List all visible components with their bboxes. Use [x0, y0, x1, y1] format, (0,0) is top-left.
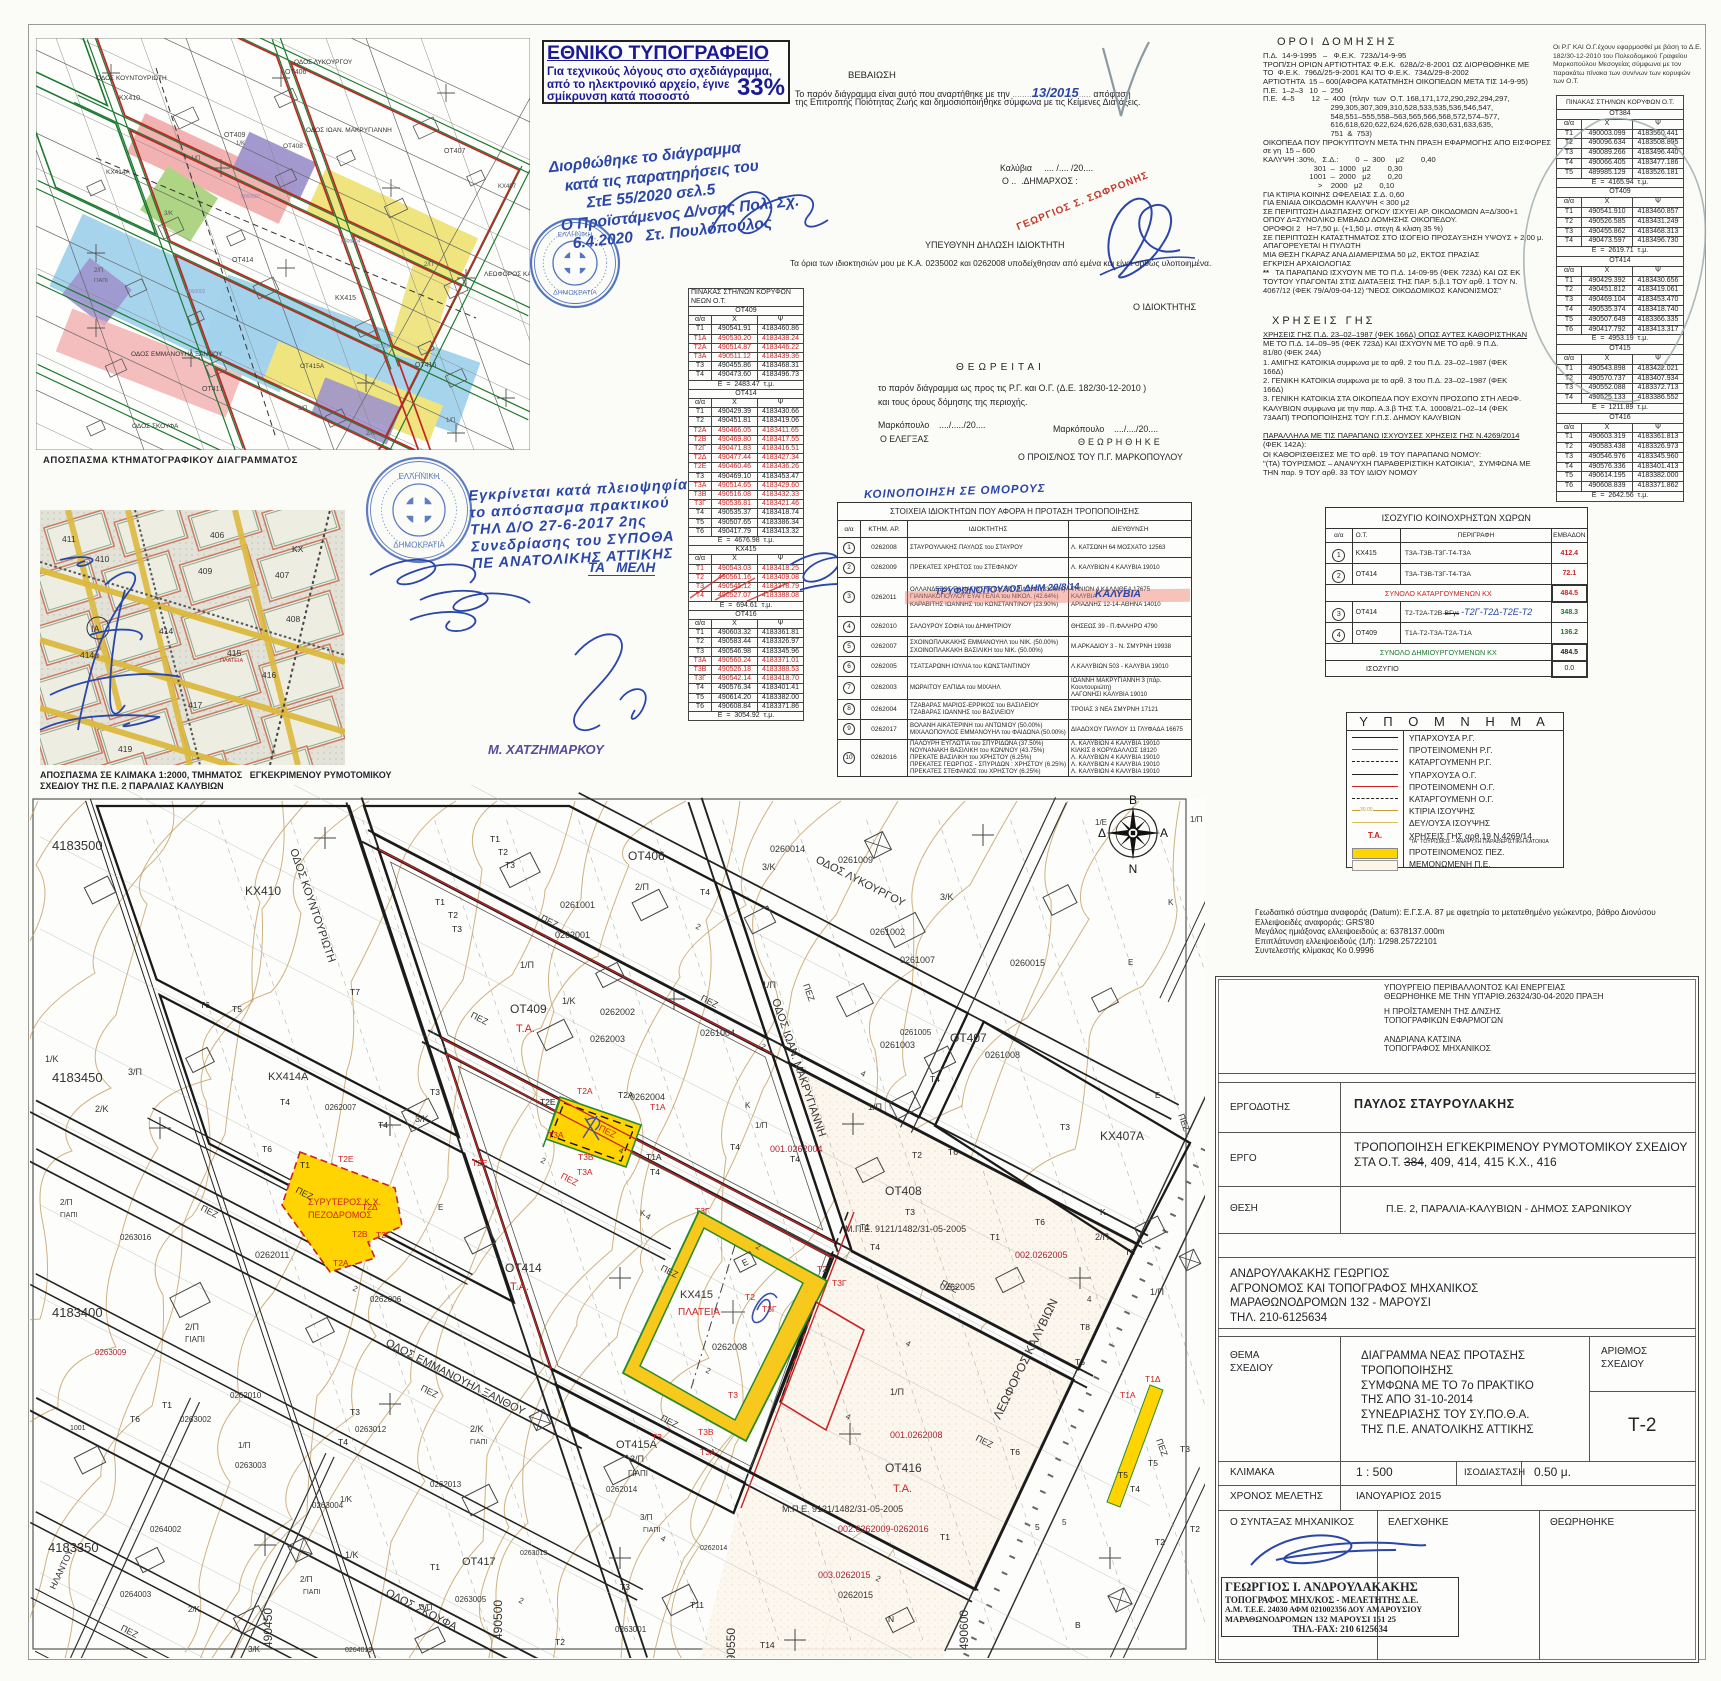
svg-text:Β: Β [1129, 793, 1137, 807]
svg-text:1/Κ: 1/Κ [236, 141, 245, 147]
svg-text:001.0262008: 001.0262008 [890, 1430, 943, 1440]
svg-text:ΚΧ414Α: ΚΧ414Α [268, 1071, 309, 1083]
svg-text:Τ2: Τ2 [912, 1150, 922, 1160]
svg-text:Τ6: Τ6 [130, 1414, 140, 1424]
svg-text:Ν: Ν [1129, 862, 1138, 876]
svg-text:ΟΔΟΣ ΕΜΜΑΝΟΥΗΛ ΞΑΝΘΟΥ: ΟΔΟΣ ΕΜΜΑΝΟΥΗΛ ΞΑΝΘΟΥ [131, 351, 223, 358]
svg-text:ΓΙΑΠΙ: ΓΙΑΠΙ [94, 278, 108, 284]
svg-text:4183500: 4183500 [52, 838, 103, 853]
svg-text:Ε: Ε [1155, 1091, 1160, 1100]
svg-text:0262015: 0262015 [838, 1590, 873, 1600]
svg-text:Β: Β [1075, 1620, 1081, 1630]
svg-text:0262011: 0262011 [255, 1250, 289, 1260]
svg-text:Τ2Α: Τ2Α [577, 1086, 593, 1096]
svg-text:Τ3: Τ3 [350, 1407, 360, 1417]
svg-text:Ν: Ν [888, 1614, 894, 1624]
svg-text:Τ5: Τ5 [1118, 1470, 1128, 1480]
svg-text:0060007: 0060007 [241, 194, 261, 200]
svg-text:Τ4: Τ4 [870, 1242, 880, 1252]
svg-text:ΚΧ414Α: ΚΧ414Α [106, 169, 131, 176]
svg-text:Τ.Α.: Τ.Α. [893, 1483, 912, 1495]
svg-text:490450: 490450 [261, 1608, 275, 1648]
svg-text:2/Π: 2/Π [1095, 1232, 1109, 1242]
svg-text:490550: 490550 [724, 1628, 738, 1658]
svg-text:002.6262009-0262016: 002.6262009-0262016 [838, 1524, 929, 1534]
svg-text:0060006: 0060006 [371, 344, 391, 350]
svg-text:2/Π: 2/Π [94, 268, 103, 274]
svg-text:Τ3: Τ3 [505, 860, 515, 870]
svg-text:4: 4 [1087, 1295, 1092, 1304]
svg-text:ΓΙΑΠΙ: ΓΙΑΠΙ [628, 1469, 648, 1478]
svg-text:Τ1: Τ1 [300, 1160, 310, 1170]
svg-text:ΟΤ414: ΟΤ414 [232, 257, 254, 264]
svg-text:Τ2: Τ2 [555, 1637, 565, 1647]
svg-text:1/Κ: 1/Κ [562, 996, 576, 1006]
svg-text:Τ5: Τ5 [232, 1004, 242, 1014]
svg-text:ΓΙΑΠΙ: ΓΙΑΠΙ [185, 1335, 205, 1344]
svg-text:3/Κ: 3/Κ [415, 1114, 429, 1124]
svg-text:0261009: 0261009 [838, 855, 873, 865]
svg-text:0261008: 0261008 [985, 1050, 1020, 1060]
svg-text:2/Π: 2/Π [60, 1198, 73, 1207]
svg-text:Τ3: Τ3 [430, 1087, 440, 1097]
svg-text:Τ3: Τ3 [728, 1390, 738, 1400]
svg-text:ΟΤ407: ΟΤ407 [950, 1031, 987, 1045]
svg-text:0261001: 0261001 [560, 900, 595, 910]
svg-text:3/Κ: 3/Κ [940, 892, 954, 902]
svg-text:Τ2Ε: Τ2Ε [338, 1154, 354, 1164]
svg-text:411: 411 [62, 534, 76, 544]
svg-text:3/Π: 3/Π [128, 1067, 142, 1077]
svg-text:003.0262015: 003.0262015 [818, 1570, 871, 1580]
svg-text:Τ11: Τ11 [690, 1600, 704, 1610]
svg-text:Τ3: Τ3 [452, 924, 462, 934]
svg-text:490500: 490500 [491, 1600, 505, 1640]
svg-text:2/Κ: 2/Κ [470, 1424, 484, 1434]
svg-text:Τ4: Τ4 [338, 1437, 348, 1447]
svg-text:0262004: 0262004 [630, 1092, 665, 1102]
svg-text:Τ1: Τ1 [940, 1532, 950, 1542]
svg-text:0260015: 0260015 [1010, 958, 1045, 968]
svg-text:ΟΤ416: ΟΤ416 [415, 362, 437, 369]
svg-text:Τ3Β: Τ3Β [698, 1427, 714, 1437]
svg-text:Τ1Α: Τ1Α [1120, 1390, 1136, 1400]
svg-text:1/Π: 1/Π [520, 960, 534, 970]
svg-text:Τ6: Τ6 [262, 1144, 272, 1154]
svg-text:Τ1Δ: Τ1Δ [1145, 1374, 1161, 1384]
svg-text:ΛΕΩΦΟΡΟΣ ΚΑΛΥΒΙΩΝ: ΛΕΩΦΟΡΟΣ ΚΑΛΥΒΙΩΝ [484, 271, 530, 278]
svg-text:Τ5: Τ5 [1075, 1357, 1085, 1367]
svg-text:3/Κ: 3/Κ [248, 1645, 261, 1654]
svg-text:Τ3: Τ3 [620, 1582, 630, 1592]
svg-text:0262003: 0262003 [590, 1034, 625, 1044]
svg-text:Τ3Γ: Τ3Γ [832, 1278, 847, 1288]
svg-text:ΟΤ416: ΟΤ416 [885, 1461, 922, 1475]
svg-text:ΚΧ407Α: ΚΧ407Α [1100, 1129, 1144, 1143]
svg-text:Τ2Γ: Τ2Γ [376, 1230, 391, 1240]
svg-text:ΟΤ414: ΟΤ414 [505, 1261, 542, 1275]
svg-text:ΟΤ417: ΟΤ417 [462, 1556, 496, 1568]
svg-text:Τ3: Τ3 [1060, 1122, 1070, 1132]
svg-text:Ε: Ε [1128, 958, 1133, 967]
svg-text:Τ4: Τ4 [730, 1142, 740, 1152]
svg-text:Τ6: Τ6 [1035, 1217, 1045, 1227]
svg-text:490600: 490600 [957, 1610, 971, 1650]
svg-text:4183400: 4183400 [52, 1305, 103, 1320]
svg-text:ΟΔΟΣ ΙΩΑΝ. ΜΑΚΡΥΓΙΑΝΝΗ: ΟΔΟΣ ΙΩΑΝ. ΜΑΚΡΥΓΙΑΝΝΗ [306, 127, 392, 134]
svg-text:5: 5 [1035, 1522, 1040, 1532]
svg-text:Ε: Ε [438, 1203, 443, 1212]
svg-text:ΚΧ410: ΚΧ410 [119, 95, 140, 102]
svg-text:1/Π: 1/Π [1150, 1287, 1164, 1297]
svg-text:2/Κ: 2/Κ [95, 1104, 109, 1114]
svg-text:ΟΤ408: ΟΤ408 [283, 143, 303, 150]
svg-text:Τ1: Τ1 [860, 1222, 870, 1232]
svg-text:1/Κ: 1/Κ [340, 1495, 353, 1504]
svg-text:0262014: 0262014 [606, 1485, 638, 1494]
svg-text:ΟΤ406: ΟΤ406 [628, 849, 665, 863]
svg-text:0263003: 0263003 [235, 1461, 267, 1470]
svg-text:Α: Α [1160, 826, 1168, 840]
svg-text:1/Π: 1/Π [191, 156, 200, 162]
svg-text:Τ.Α.: Τ.Α. [510, 1281, 529, 1293]
svg-text:ΚΧ415: ΚΧ415 [680, 1289, 713, 1301]
svg-text:3/Κ: 3/Κ [164, 211, 173, 217]
svg-text:0261004: 0261004 [700, 1028, 735, 1038]
svg-text:001.0262004: 001.0262004 [770, 1144, 823, 1154]
svg-text:002.0262005: 002.0262005 [1015, 1250, 1068, 1260]
svg-text:1/Κ: 1/Κ [345, 1550, 359, 1560]
svg-text:Τ2Ε: Τ2Ε [540, 1097, 556, 1107]
svg-text:Τ4: Τ4 [700, 887, 710, 897]
svg-text:0262007: 0262007 [325, 1103, 357, 1112]
svg-text:ΠΛΑΤΕΙΑ: ΠΛΑΤΕΙΑ [678, 1307, 720, 1318]
svg-text:Τ2: Τ2 [745, 1292, 755, 1302]
svg-text:0262001: 0262001 [555, 930, 590, 940]
svg-text:1/Π: 1/Π [755, 1121, 768, 1130]
svg-text:Τ6: Τ6 [1010, 1447, 1020, 1457]
svg-text:Τ7: Τ7 [350, 987, 360, 997]
svg-text:0263005: 0263005 [455, 1595, 487, 1604]
svg-text:Τ3Α: Τ3Α [700, 1447, 716, 1457]
svg-text:0262013: 0262013 [430, 1480, 462, 1489]
svg-text:0262006: 0262006 [370, 1295, 402, 1304]
svg-text:Τ3Γ: Τ3Γ [695, 1206, 710, 1216]
svg-text:3/Π: 3/Π [298, 406, 307, 412]
svg-text:0263002: 0263002 [180, 1415, 212, 1424]
svg-text:Τ1: Τ1 [435, 897, 445, 907]
svg-text:Τ2: Τ2 [1190, 1524, 1200, 1534]
svg-text:2/Π: 2/Π [635, 882, 649, 892]
svg-text:0262002: 0262002 [600, 1007, 635, 1017]
svg-text:Τ6: Τ6 [948, 1147, 958, 1157]
svg-text:Τ5: Τ5 [1148, 1458, 1158, 1468]
svg-text:ΚΧ407: ΚΧ407 [498, 184, 517, 190]
svg-text:Τ1: Τ1 [990, 1232, 1000, 1242]
svg-text:Τ2Α: Τ2Α [333, 1258, 349, 1268]
svg-text:0261003: 0261003 [880, 1040, 915, 1050]
svg-text:Τ4: Τ4 [930, 1074, 940, 1084]
svg-text:0262010: 0262010 [230, 1391, 262, 1400]
svg-text:0261007: 0261007 [900, 955, 935, 965]
svg-text:Τ4: Τ4 [1130, 1484, 1140, 1494]
svg-text:ΟΔΟΣ ΛΥΚΟΥΡΓΟΥ: ΟΔΟΣ ΛΥΚΟΥΡΓΟΥ [294, 59, 353, 66]
svg-text:Κ: Κ [745, 1101, 751, 1110]
svg-text:Τ3Β: Τ3Β [578, 1152, 594, 1162]
svg-text:ΟΤ406: ΟΤ406 [285, 69, 307, 76]
svg-text:ΓΙΑΠΙ: ΓΙΑΠΙ [303, 1589, 321, 1596]
svg-text:1/Π: 1/Π [868, 1102, 882, 1112]
svg-text:Τ2: Τ2 [817, 1264, 827, 1274]
svg-text:Τ.Α.: Τ.Α. [516, 1023, 535, 1035]
svg-text:Τ1: Τ1 [490, 834, 500, 844]
svg-text:ΕΛΛΗΝΙΚΗ: ΕΛΛΗΝΙΚΗ [558, 232, 593, 239]
svg-text:2/Κ: 2/Κ [366, 431, 375, 437]
svg-text:3/Π: 3/Π [640, 1513, 653, 1522]
svg-text:Τ3: Τ3 [652, 1432, 662, 1442]
svg-text:2/Π: 2/Π [185, 1322, 199, 1332]
svg-text:1/Π: 1/Π [890, 1387, 904, 1397]
svg-text:Τ3Α: Τ3Α [577, 1167, 593, 1177]
svg-text:ΟΤ417: ΟΤ417 [202, 386, 224, 393]
svg-text:ΟΤ408: ΟΤ408 [885, 1184, 922, 1198]
svg-text:Κ: Κ [1100, 1207, 1106, 1217]
svg-text:Τ2: Τ2 [498, 847, 508, 857]
svg-text:0263013: 0263013 [520, 1550, 547, 1557]
svg-text:2/Π: 2/Π [424, 262, 433, 268]
svg-text:Τ1Α: Τ1Α [650, 1102, 666, 1112]
svg-text:2/Κ: 2/Κ [188, 1605, 201, 1614]
svg-text:1/Π: 1/Π [762, 980, 776, 990]
svg-text:Τ6: Τ6 [200, 1000, 210, 1010]
svg-text:Τ3Γ: Τ3Γ [762, 1304, 777, 1314]
svg-text:Τ2Δ: Τ2Δ [362, 1202, 378, 1212]
svg-text:Τ4: Τ4 [790, 1154, 800, 1164]
svg-text:Τ3: Τ3 [905, 1207, 915, 1217]
svg-text:ΟΤ407: ΟΤ407 [444, 148, 466, 155]
svg-text:Τ3Α: Τ3Α [548, 1130, 564, 1140]
svg-text:Τ2: Τ2 [1155, 1537, 1165, 1547]
svg-text:0261005: 0261005 [900, 1028, 932, 1037]
svg-text:1/Κ: 1/Κ [45, 1054, 59, 1064]
svg-text:Τ4: Τ4 [650, 1167, 660, 1177]
svg-text:0263012: 0263012 [355, 1425, 387, 1434]
svg-text:Κ: Κ [1168, 898, 1174, 907]
svg-text:ΓΙΑΠΙ: ΓΙΑΠΙ [470, 1439, 488, 1446]
svg-text:Τ2Β: Τ2Β [352, 1229, 368, 1239]
svg-text:Τ1Α: Τ1Α [646, 1152, 662, 1162]
svg-text:ΟΤ409: ΟΤ409 [224, 132, 246, 139]
svg-text:Τ1: Τ1 [430, 1562, 440, 1572]
svg-text:0262008: 0262008 [712, 1342, 747, 1352]
svg-text:Τ8: Τ8 [1080, 1322, 1090, 1332]
svg-text:Τ6: Τ6 [1125, 1247, 1135, 1257]
svg-text:Μ.Π.Ε. 9121/1482/31-05-2005: Μ.Π.Ε. 9121/1482/31-05-2005 [782, 1504, 903, 1514]
svg-text:Τ4: Τ4 [280, 1097, 290, 1107]
svg-text:Δ: Δ [1098, 826, 1106, 840]
svg-text:ΕΛΛΗΝΙΚΗ: ΕΛΛΗΝΙΚΗ [398, 472, 439, 481]
svg-text:406: 406 [210, 530, 224, 540]
svg-text:1001: 1001 [70, 1425, 86, 1432]
svg-text:0263001: 0263001 [615, 1625, 647, 1634]
svg-text:ΟΤ409: ΟΤ409 [510, 1002, 547, 1016]
svg-text:ΟΔΟΣ ΣΚΟΥΦΑ: ΟΔΟΣ ΣΚΟΥΦΑ [132, 423, 179, 430]
svg-text:ΚΧ415: ΚΧ415 [335, 295, 356, 302]
svg-text:0060004: 0060004 [341, 239, 361, 245]
svg-text:3/Π: 3/Π [420, 1603, 433, 1612]
svg-text:0264002: 0264002 [150, 1525, 182, 1534]
svg-text:1/Ε: 1/Ε [1095, 818, 1107, 827]
svg-text:Τ2Α: Τ2Α [618, 1090, 634, 1100]
svg-text:2/Π: 2/Π [300, 1575, 313, 1584]
svg-text:Τ14: Τ14 [760, 1640, 775, 1650]
svg-text:0263009: 0263009 [95, 1348, 127, 1357]
svg-text:0264019: 0264019 [345, 1647, 372, 1654]
svg-text:0262014: 0262014 [700, 1545, 727, 1552]
svg-text:1/Π: 1/Π [1190, 815, 1203, 824]
svg-text:1/Π: 1/Π [238, 1441, 251, 1450]
svg-text:0060002: 0060002 [186, 289, 206, 295]
svg-text:1/Π: 1/Π [446, 418, 455, 424]
svg-text:0263004: 0263004 [312, 1501, 344, 1510]
svg-text:ΚΧ410: ΚΧ410 [245, 884, 281, 898]
svg-text:Τ3: Τ3 [1180, 1444, 1190, 1454]
svg-text:ΟΔΟΣ ΚΟΥΝΤΟΥΡΙΩΤΗ: ΟΔΟΣ ΚΟΥΝΤΟΥΡΙΩΤΗ [96, 75, 167, 82]
svg-text:3/Π: 3/Π [630, 1454, 644, 1464]
svg-text:5: 5 [1062, 1518, 1067, 1527]
svg-text:4183350: 4183350 [48, 1540, 99, 1555]
svg-text:Τ1: Τ1 [162, 1400, 172, 1410]
svg-text:0263016: 0263016 [120, 1233, 152, 1242]
svg-text:Τ2: Τ2 [448, 910, 458, 920]
svg-text:4183450: 4183450 [52, 1070, 103, 1085]
svg-text:0264003: 0264003 [120, 1590, 152, 1599]
svg-text:Τ2Ε: Τ2Ε [472, 1158, 488, 1168]
svg-text:ΓΙΑΠΙ: ΓΙΑΠΙ [643, 1527, 661, 1534]
svg-text:ΓΙΑΠΙ: ΓΙΑΠΙ [60, 1212, 78, 1219]
svg-text:0261002: 0261002 [870, 927, 905, 937]
svg-text:ΟΤ415Α: ΟΤ415Α [300, 363, 325, 370]
svg-text:3/Κ: 3/Κ [762, 862, 776, 872]
svg-text:Τ4: Τ4 [378, 1120, 388, 1130]
svg-text:0260014: 0260014 [770, 844, 805, 854]
